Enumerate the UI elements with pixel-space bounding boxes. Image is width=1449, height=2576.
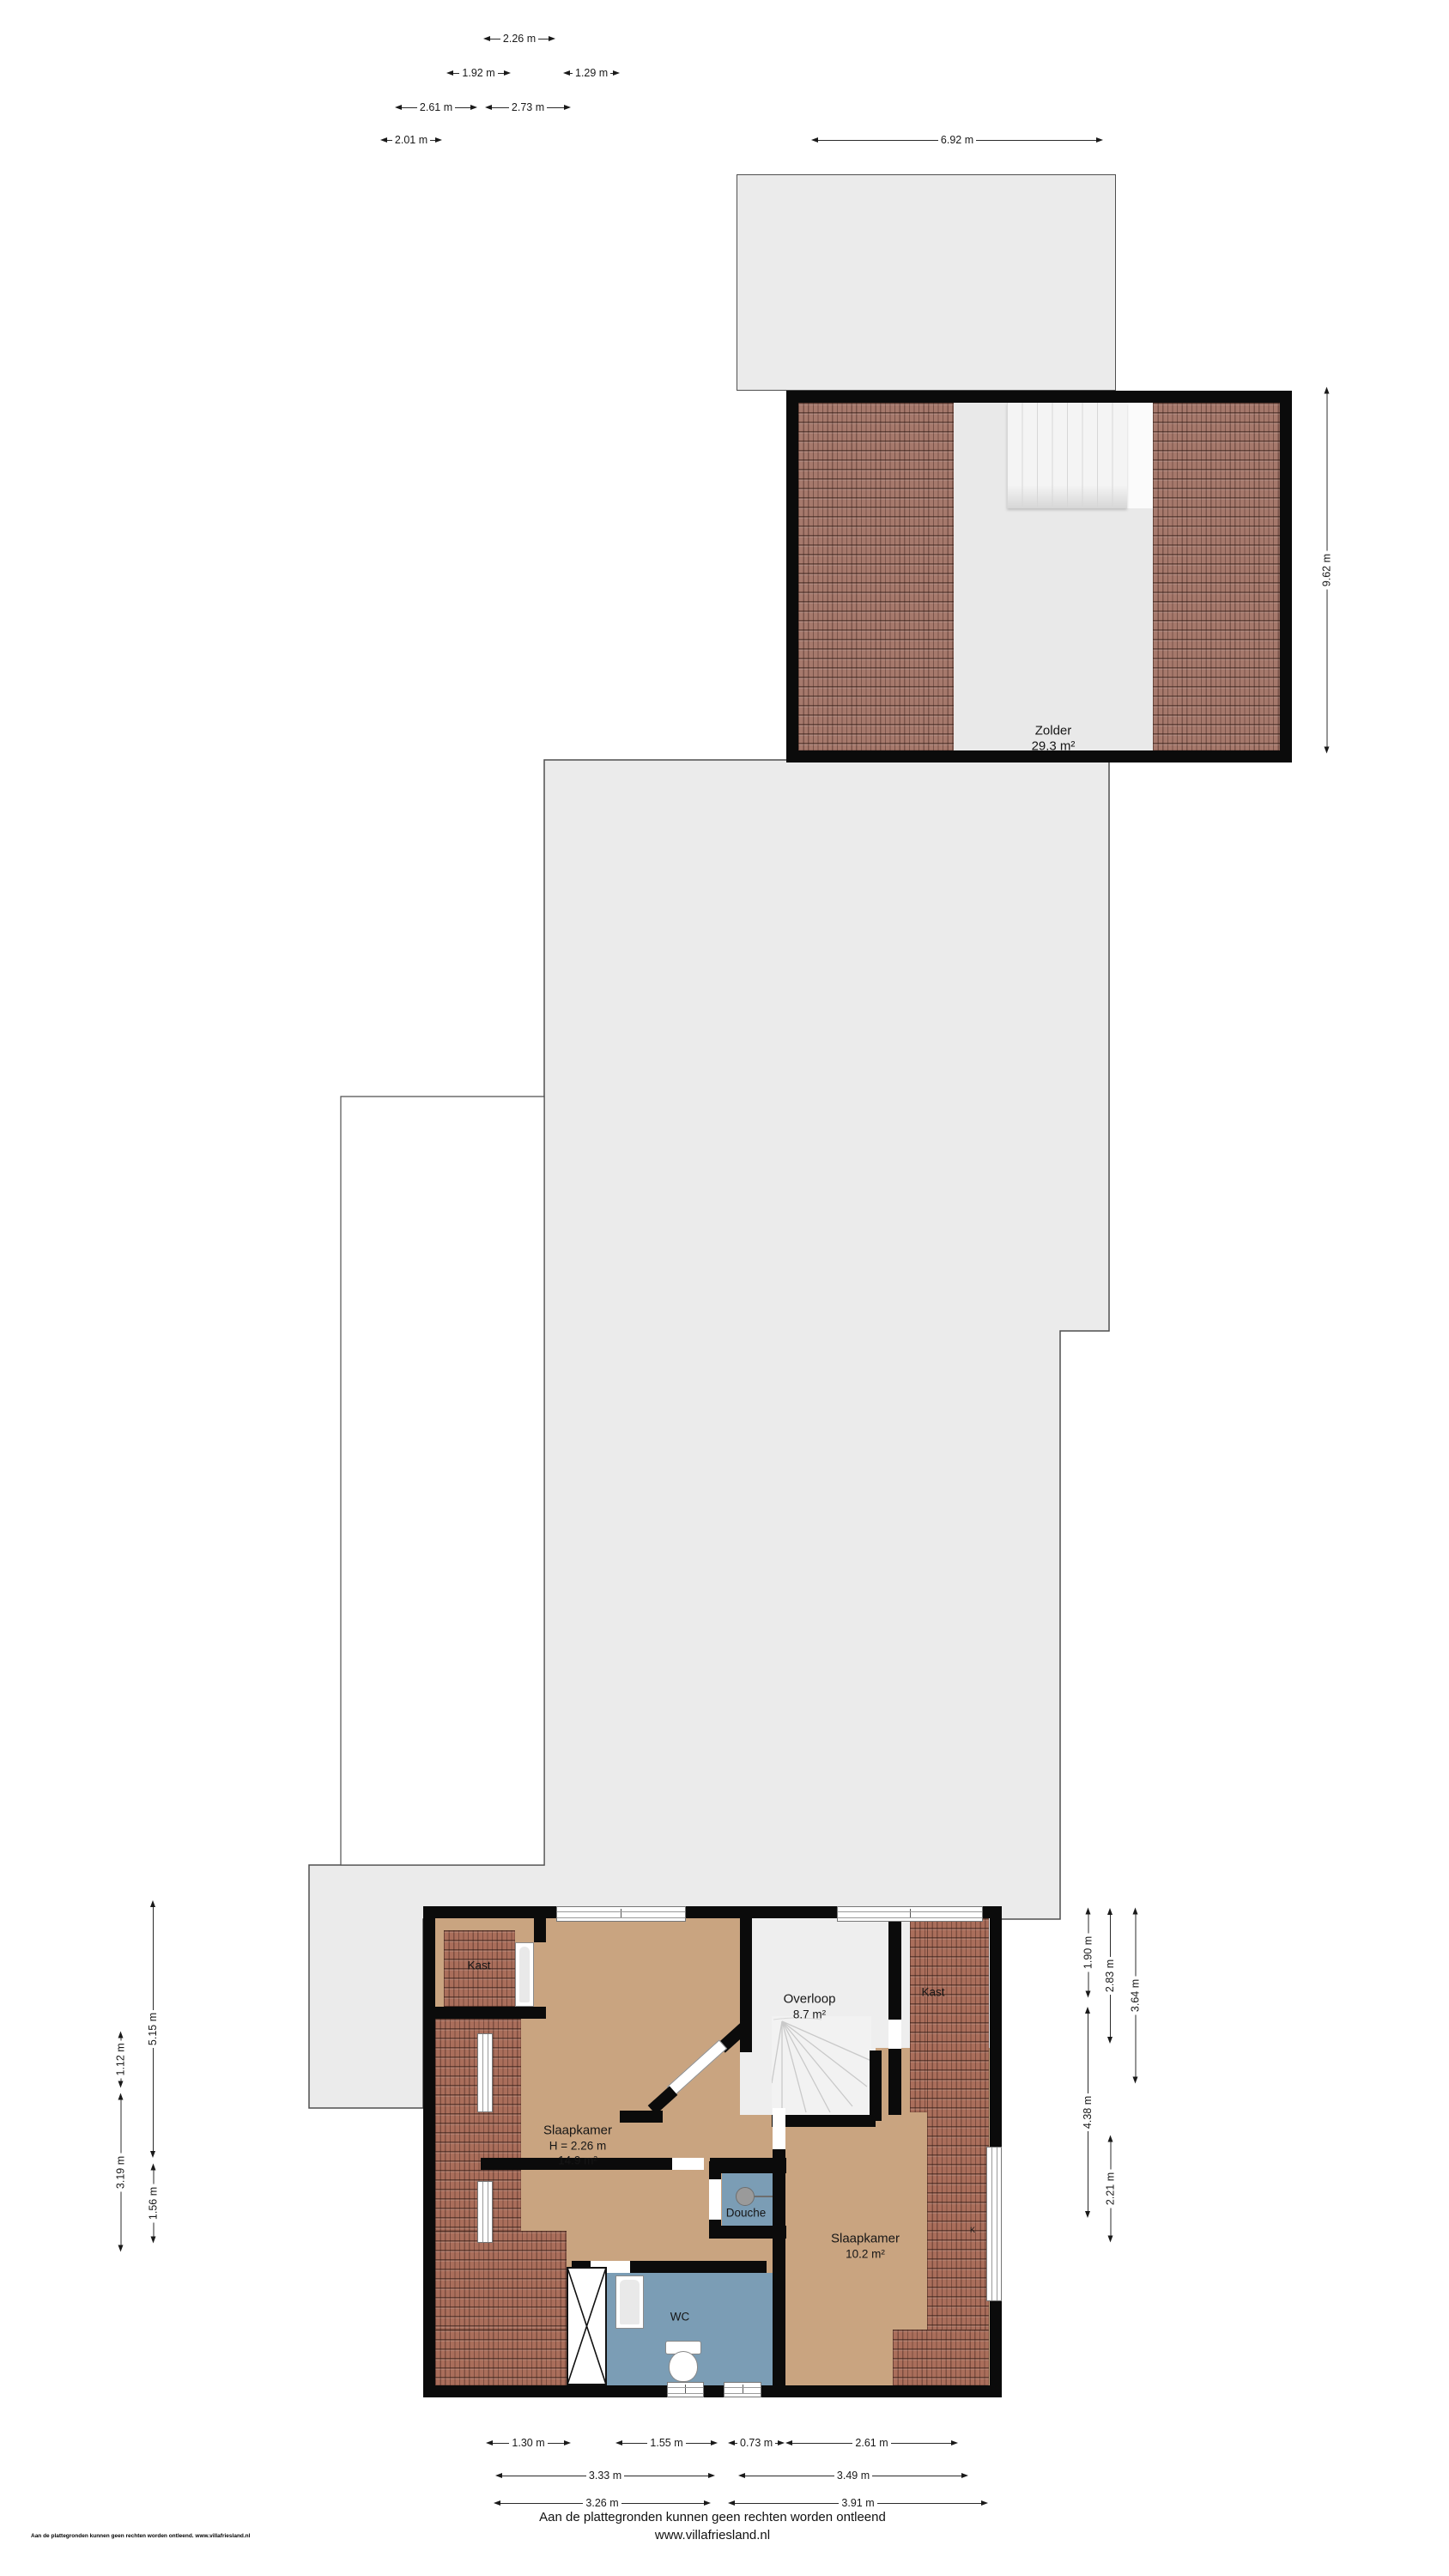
dim-top-1-92: 1.92 m (446, 64, 511, 82)
door-leaf-wc (615, 2275, 644, 2329)
dim-left-5-15: 5.15 m (144, 1900, 161, 2158)
window-left-upper (477, 2033, 493, 2112)
dim-label: 1.55 m (647, 2437, 685, 2449)
window-top-left (556, 1906, 686, 1922)
bedroom-right-label: Slaapkamer (831, 2232, 900, 2246)
door-closet-left (515, 1942, 534, 2007)
dim-right-2-21: 2.21 m (1102, 2136, 1119, 2243)
footer-website: www.villafriesland.nl (343, 2528, 1082, 2543)
attic-room-area: 29.3 m² (1032, 739, 1076, 754)
dim-top-2-61: 2.61 m (395, 99, 477, 116)
dim-label: 2.01 m (392, 134, 430, 146)
dim-top-2-01: 2.01 m (380, 131, 442, 149)
footer-disclaimer: Aan de plattegronden kunnen geen rechten… (343, 2510, 1082, 2524)
door-gap-bedroom-south (672, 2158, 704, 2170)
dim-bottom-0-73: 0.73 m (728, 2434, 776, 2451)
closet-right-label: Kast (921, 1986, 944, 1999)
floor-plan (423, 1906, 1002, 2397)
dim-bottom-3-26: 3.26 m (494, 2494, 711, 2512)
wall-stairs-bottom (772, 2115, 876, 2127)
window-top-right (837, 1906, 983, 1922)
closet-left-label: Kast (467, 1959, 490, 1972)
bedroom-left-height: H = 2.26 m (549, 2140, 606, 2153)
dim-label: 2.61 m (852, 2437, 890, 2449)
bedroom-left-label: Slaapkamer (543, 2123, 612, 2138)
dim-bottom-3-49: 3.49 m (738, 2467, 968, 2484)
window-right-bedroom (986, 2147, 1002, 2301)
dim-left-1-56: 1.56 m (145, 2164, 162, 2244)
attic-stair-landing (1127, 403, 1153, 508)
dim-bottom-1-30: 1.30 m (486, 2434, 571, 2451)
attic-plan: Zolder 29.3 m² (786, 391, 1292, 762)
dim-bottom-1-55: 1.55 m (615, 2434, 718, 2451)
wall-stairs-right (870, 2050, 882, 2121)
attic-room-label: Zolder (1035, 724, 1072, 738)
closet-x-cabinet (567, 2267, 607, 2385)
roof-outline-upper (737, 174, 1116, 391)
door-gap-closet-right (888, 2020, 901, 2049)
floor-staircase (772, 2016, 871, 2115)
closet-abbr-label: K (970, 2226, 975, 2234)
dim-top-1-29: 1.29 m (563, 64, 608, 82)
wall-bedrooms-divider (773, 2115, 785, 2385)
left-roof-step1 (435, 2231, 567, 2330)
arrowhead-left-icon (483, 36, 490, 41)
dim-label: 2.21 m (1105, 2170, 1117, 2208)
right-roof-bottom (893, 2330, 989, 2385)
dim-label: 2.83 m (1104, 1957, 1116, 1995)
door-panel (519, 1947, 530, 2002)
dim-label: 1.90 m (1082, 1934, 1094, 1971)
dim-label: 1.12 m (115, 2040, 127, 2078)
wall-closet-left-stub (534, 1918, 546, 1942)
dim-label: 1.30 m (509, 2437, 547, 2449)
dim-left-1-12: 1.12 m (112, 2032, 130, 2088)
dim-label: 5.15 m (147, 2010, 159, 2048)
wall-closet-right (888, 1918, 901, 2115)
shower-label: Douche (726, 2207, 767, 2220)
dim-top-2-26: 2.26 m (483, 30, 555, 47)
dim-label: 4.38 m (1082, 2093, 1094, 2131)
dim-top-2-73: 2.73 m (485, 99, 571, 116)
dim-bottom-3-33: 3.33 m (495, 2467, 715, 2484)
attic-roof-tiles-right (1153, 403, 1280, 750)
toilet-icon (665, 2341, 701, 2384)
dim-label: 3.91 m (839, 2497, 876, 2509)
floorplan-page: 2.26 m 1.92 m 1.29 m 2.61 m 2.73 m 2.01 … (0, 0, 1449, 2576)
dim-label: 3.26 m (583, 2497, 621, 2509)
dim-attic-height: 9.62 m (1319, 387, 1336, 754)
dim-left-3-19: 3.19 m (112, 2093, 130, 2252)
dim-label: 9.62 m (1321, 551, 1333, 589)
window-bottom-right (724, 2382, 761, 2397)
dim-label: 2.26 m (500, 33, 538, 45)
dim-label: 6.92 m (938, 134, 976, 146)
attic-staircase (1007, 403, 1127, 508)
door-gap-bedroom-right (773, 2108, 785, 2149)
dim-label: 3.19 m (115, 2154, 127, 2191)
wall-closet-left-bottom (435, 2007, 546, 2019)
landing-area: 8.7 m² (793, 2008, 826, 2021)
dim-right-3-64: 3.64 m (1127, 1908, 1144, 2084)
attic-roof-tiles-left (798, 403, 954, 750)
dim-bottom-3-91: 3.91 m (728, 2494, 988, 2512)
bedroom-right-area: 10.2 m² (846, 2248, 885, 2261)
dim-label: 1.29 m (573, 67, 610, 79)
corner-disclaimer: Aan de plattegronden kunnen geen rechten… (31, 2533, 250, 2539)
landing-label: Overloop (784, 1992, 836, 2007)
dim-label: 2.73 m (509, 101, 547, 113)
dim-top-6-92: 6.92 m (811, 131, 1103, 149)
door-gap-shower (709, 2179, 721, 2220)
dim-label: 1.56 m (148, 2184, 160, 2222)
dim-label: 3.49 m (834, 2470, 872, 2482)
dim-label: 3.33 m (586, 2470, 624, 2482)
dim-right-4-38: 4.38 m (1079, 2007, 1096, 2218)
bedroom-left-area: 14.9 m² (558, 2154, 597, 2167)
wc-label: WC (670, 2311, 690, 2324)
dim-right-1-90: 1.90 m (1080, 1908, 1097, 1998)
window-bottom-left (667, 2382, 704, 2397)
dim-label: 2.61 m (417, 101, 455, 113)
dim-right-2-83: 2.83 m (1101, 1908, 1119, 2044)
window-left-lower (477, 2181, 493, 2243)
arrowhead-right-icon (549, 36, 555, 41)
wall-angled-connector (620, 2111, 663, 2123)
door-panel (620, 2280, 640, 2324)
dim-label: 3.64 m (1130, 1977, 1142, 2014)
dim-label: 0.73 m (737, 2437, 775, 2449)
dim-label: 1.92 m (459, 67, 497, 79)
dim-bottom-2-61: 2.61 m (785, 2434, 958, 2451)
shower-head-icon (736, 2187, 770, 2206)
